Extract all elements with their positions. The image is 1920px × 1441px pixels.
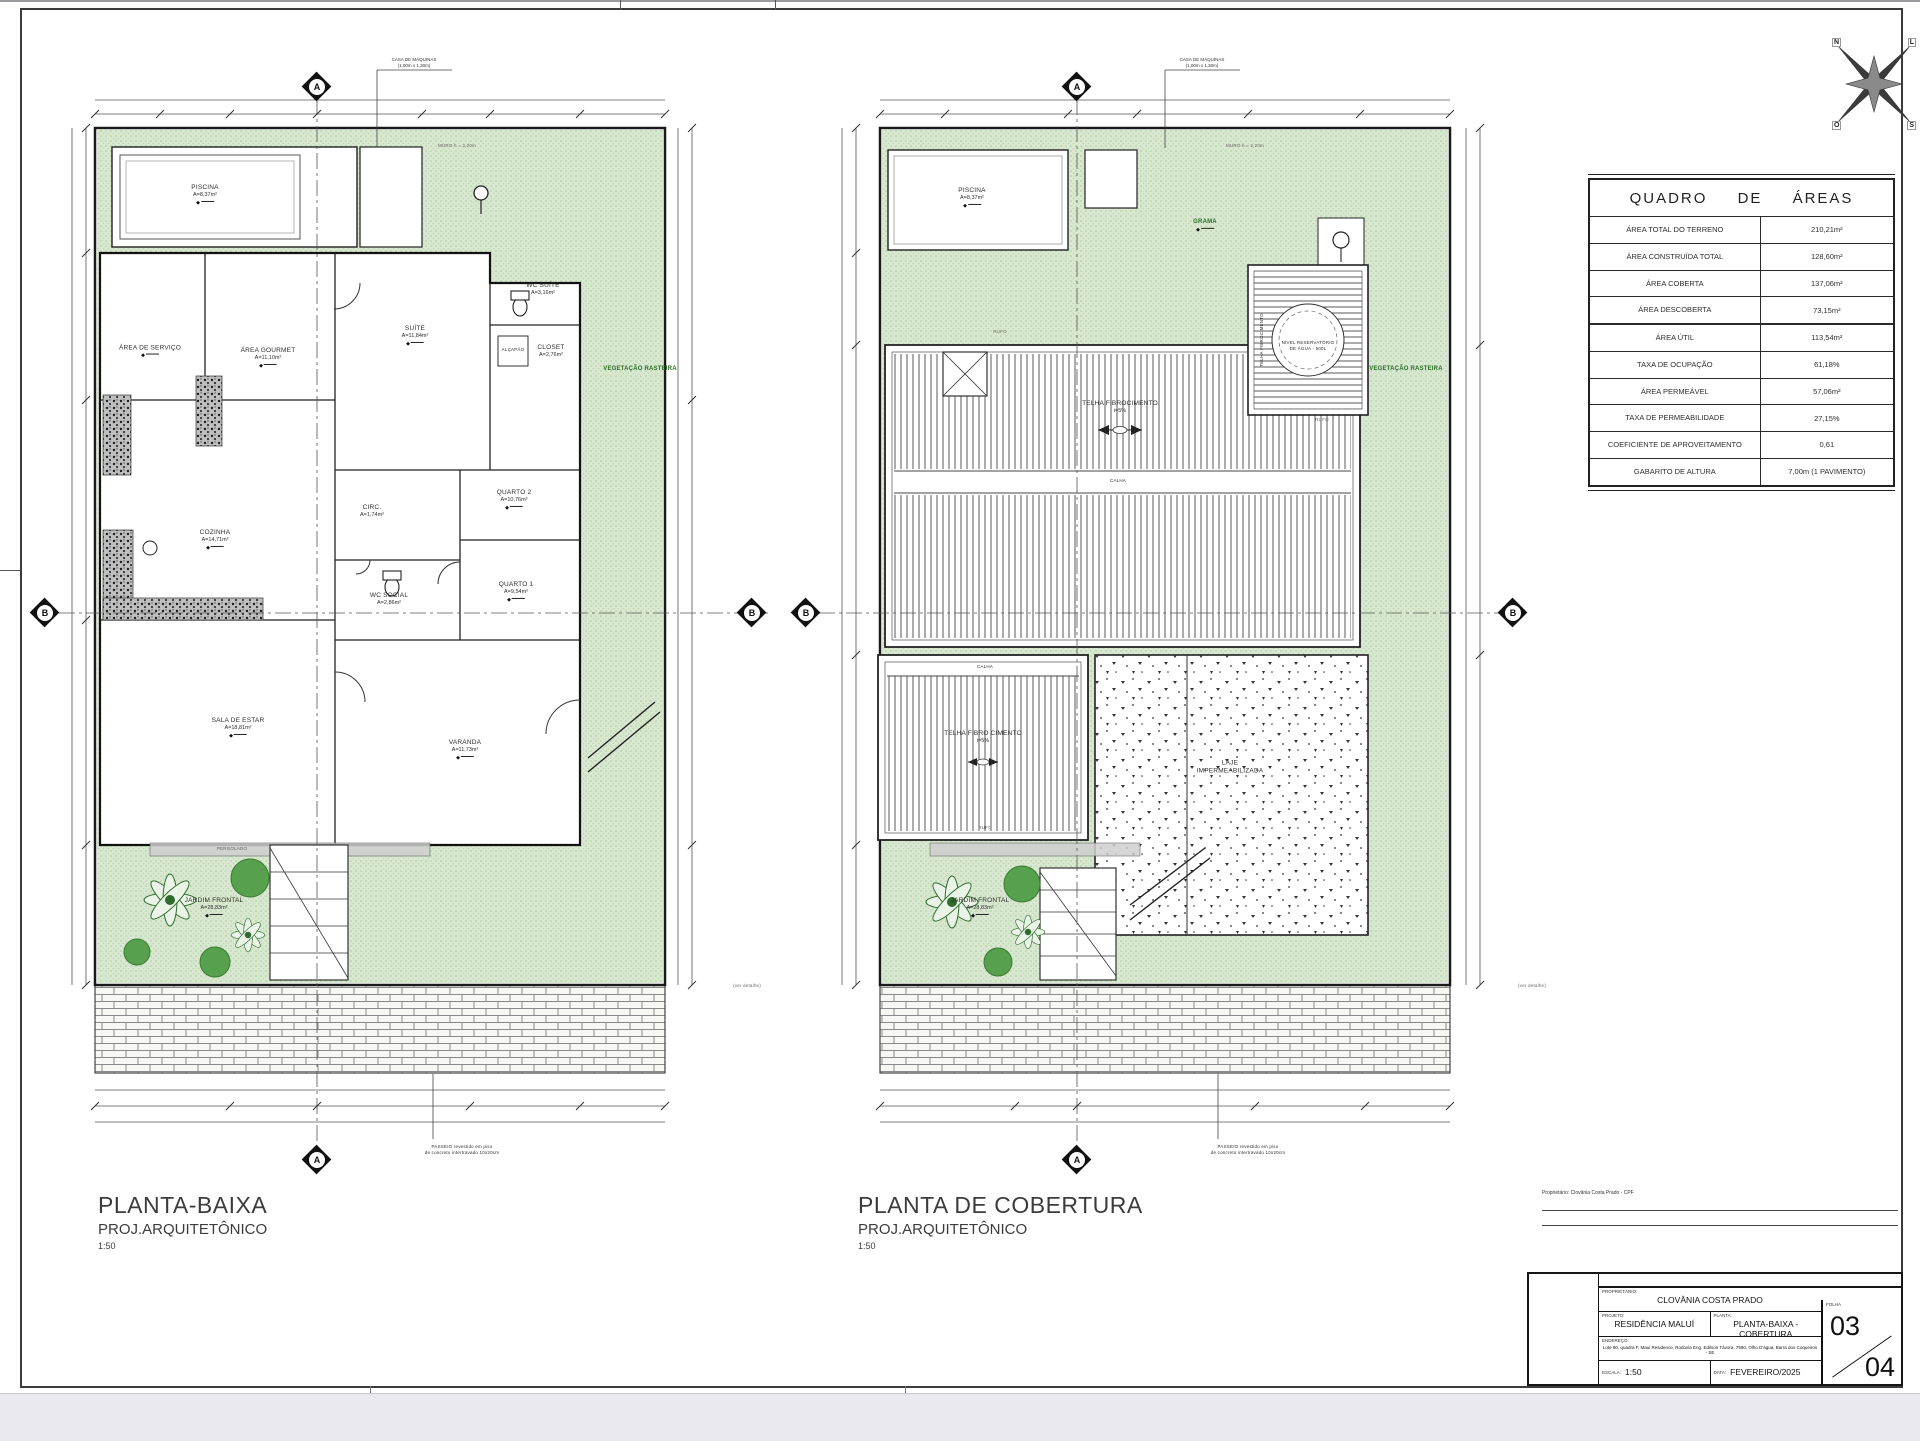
room-label-jardim-frontal: JARDIM FRONTAL A=28,83m² ◆	[185, 897, 244, 919]
signature-line	[1542, 1210, 1898, 1211]
section-marker-b: B	[30, 598, 60, 628]
callout-casa-maquinas: CASA DE MÁQUINAS (1,00m x 1,30m)	[392, 57, 437, 68]
roof-label-calha-1: CALHA	[1110, 478, 1126, 484]
roof-label-vegetacao: VEGETAÇÃO RASTEIRA	[1369, 366, 1443, 374]
level-marker-icon: ◆	[456, 755, 460, 761]
room-label-quarto1: QUARTO 1 A=9,54m² ◆	[499, 581, 534, 603]
roof-note-passeio: PASSEIO revestido em piso de concreto in…	[1211, 1144, 1285, 1156]
planta-baixa-drawing	[32, 70, 768, 1172]
level-marker-icon: ◆	[141, 353, 145, 359]
owner-name: CLOVÂNIA COSTA PRADO	[1602, 1295, 1818, 1305]
areas-table: QUADRO DE ÁREAS ÁREA TOTAL DO TERRENO210…	[1588, 178, 1895, 487]
title-block: FOLHA 03 04 PROPRIETÁRIO: CLOVÂNIA COSTA…	[1527, 1272, 1903, 1386]
level-marker-icon: ◆	[971, 913, 975, 919]
scale-value: 1:50	[1625, 1367, 1642, 1377]
table-row: ÁREA ÚTIL113,54m²	[1590, 323, 1893, 351]
table-row: ÁREA COBERTA137,06m²	[1590, 270, 1893, 297]
section-marker-b: B	[791, 598, 821, 628]
label-muro: MURO h = 2,20m	[438, 143, 476, 149]
roof-label-jardim: JARDIM FRONTAL A=28,83m² ◆	[951, 897, 1010, 919]
section-marker-a: A	[302, 72, 332, 102]
roof-label-rufo-1: RUFO	[993, 329, 1007, 335]
planta-cobertura-drawing	[792, 70, 1518, 1172]
level-marker-icon: ◆	[206, 545, 210, 551]
section-marker-a: A	[1062, 72, 1092, 102]
table-row: ÁREA PERMEÁVEL57,06m²	[1590, 378, 1893, 405]
level-marker-icon: ◆	[205, 913, 209, 919]
roof-label-telha-2: TELHA FIBRO CIMENTO i=5%	[944, 730, 1022, 746]
room-label-quarto2: QUARTO 2 A=10,76m² ◆	[497, 489, 532, 511]
section-marker-a: A	[302, 1145, 332, 1175]
table-row: COEFICIENTE DE APROVEITAMENTO0,61	[1590, 431, 1893, 458]
room-label-area-gourmet: ÁREA GOURMET A=11,10m² ◆	[241, 347, 296, 369]
drawing-sheet: PISCINA A=8,37m² ◆ ÁREA DE SERVIÇO ◆ ÁRE…	[0, 0, 1920, 1441]
sheet-total: 04	[1865, 1352, 1895, 1383]
plan-name: PLANTA-BAIXA - COBERTURA	[1714, 1319, 1819, 1335]
section-marker-b: B	[737, 598, 767, 628]
compass-west-label: O	[1832, 121, 1841, 130]
signature-line	[1542, 1225, 1898, 1226]
roof-label-piscina: PISCINA A=8,37m² ◆	[958, 187, 985, 209]
room-label-wc-suite: WC SUÍTE A=3,16m²	[526, 282, 559, 298]
roof-label-laje: LAJE IMPERMEABILIZADA	[1197, 760, 1264, 777]
level-marker-icon: ◆	[1196, 227, 1200, 233]
room-label-varanda: VARANDA A=11,73m² ◆	[449, 739, 481, 761]
signature-block: Proprietário: Clovânia Costa Prado - CPF	[1542, 1190, 1898, 1226]
compass-rose: N L O S	[1828, 36, 1920, 132]
label-vegetacao-rasteira: VEGETAÇÃO RASTEIRA	[603, 366, 677, 374]
room-label-piscina: PISCINA A=8,37m² ◆	[191, 184, 218, 206]
level-marker-icon: ◆	[259, 363, 263, 369]
table-row: ÁREA DESCOBERTA73,15m²	[1590, 296, 1893, 323]
compass-east-label: L	[1908, 38, 1916, 47]
roof-label-muro: MURO h = 2,20m	[1226, 143, 1264, 149]
roof-label-rufo-2: RUFO	[1315, 417, 1329, 423]
section-marker-b: B	[1498, 598, 1528, 628]
sheet-number-label: FOLHA	[1826, 1302, 1901, 1307]
sheet-number: 03	[1830, 1311, 1860, 1342]
date-value: FEVEREIRO/2025	[1730, 1367, 1800, 1377]
level-marker-icon: ◆	[229, 733, 233, 739]
title-block-spacer	[1599, 1274, 1901, 1287]
room-label-suite: SUÍTE A=11,84m² ◆	[402, 325, 429, 347]
room-label-cozinha: COZINHA A=14,71m² ◆	[200, 529, 231, 551]
table-row: GABARITO DE ALTURA7,00m (1 PAVIMENTO)	[1590, 458, 1893, 485]
room-label-closet: CLOSET A=2,76m²	[537, 344, 564, 360]
level-marker-icon: ◆	[406, 341, 410, 347]
note-ver-detalhe: (ver detalhe)	[733, 983, 761, 989]
table-row: ÁREA CONSTRUÍDA TOTAL128,60m²	[1590, 243, 1893, 270]
roof-note-ver-detalhe: (ver detalhe)	[1518, 983, 1546, 989]
compass-south-label: S	[1907, 121, 1916, 130]
roof-label-calha-2: CALHA	[977, 664, 993, 670]
roof-label-telha-1: TELHA FIBROCIMENTO i=5%	[1082, 400, 1158, 416]
title-block-logo-area	[1529, 1274, 1599, 1384]
room-label-wc-social: WC SOCIAL A=2,86m²	[370, 592, 408, 608]
table-row: TAXA DE OCUPAÇÃO61,18%	[1590, 351, 1893, 378]
label-pergolado: PERGOLADO	[217, 846, 247, 852]
room-label-sala: SALA DE ESTAR A=18,81m² ◆	[212, 717, 265, 739]
roof-label-rufo-3: RUFO	[978, 825, 992, 831]
level-marker-icon: ◆	[507, 597, 511, 603]
plan-title-cobertura: PLANTA DE COBERTURA PROJ.ARQUITETÔNICO 1…	[858, 1192, 1143, 1251]
roof-label-telha-vert: TELHA FIBROCIMENTO	[1259, 313, 1265, 367]
room-label-area-servico: ÁREA DE SERVIÇO ◆	[119, 345, 181, 360]
table-row: ÁREA TOTAL DO TERRENO210,21m²	[1590, 216, 1893, 243]
section-marker-a: A	[1062, 1145, 1092, 1175]
roof-label-reservatorio: NÍVEL RESERVATÓRIO DE ÁGUA - 500L	[1282, 340, 1335, 352]
level-marker-icon: ◆	[963, 203, 967, 209]
note-passeio: PASSEIO revestido em piso de concreto in…	[425, 1144, 499, 1156]
table-row: TAXA DE PERMEABILIDADE27,15%	[1590, 404, 1893, 431]
compass-north-label: N	[1832, 38, 1841, 47]
level-marker-icon: ◆	[505, 505, 509, 511]
room-label-circ: CIRC. A=1,74m²	[360, 504, 384, 520]
room-label-alcapao: ALÇAPÃO	[502, 347, 525, 353]
roof-label-grama: GRAMA ◆	[1193, 219, 1217, 233]
address: Lote 90, quadra F, Maui Residence, Rodov…	[1602, 1345, 1818, 1355]
plan-title-planta-baixa: PLANTA-BAIXA PROJ.ARQUITETÔNICO 1:50	[98, 1192, 267, 1251]
sheet-number-box: FOLHA 03 04	[1821, 1300, 1901, 1384]
owner-note: Proprietário: Clovânia Costa Prado - CPF	[1542, 1190, 1898, 1196]
roof-callout-casa-maquinas: CASA DE MÁQUINAS (1,00m x 1,30m)	[1180, 57, 1225, 68]
areas-table-title: QUADRO DE ÁREAS	[1590, 180, 1893, 216]
project-name: RESIDÊNCIA MALUÍ	[1602, 1319, 1707, 1329]
level-marker-icon: ◆	[196, 200, 200, 206]
